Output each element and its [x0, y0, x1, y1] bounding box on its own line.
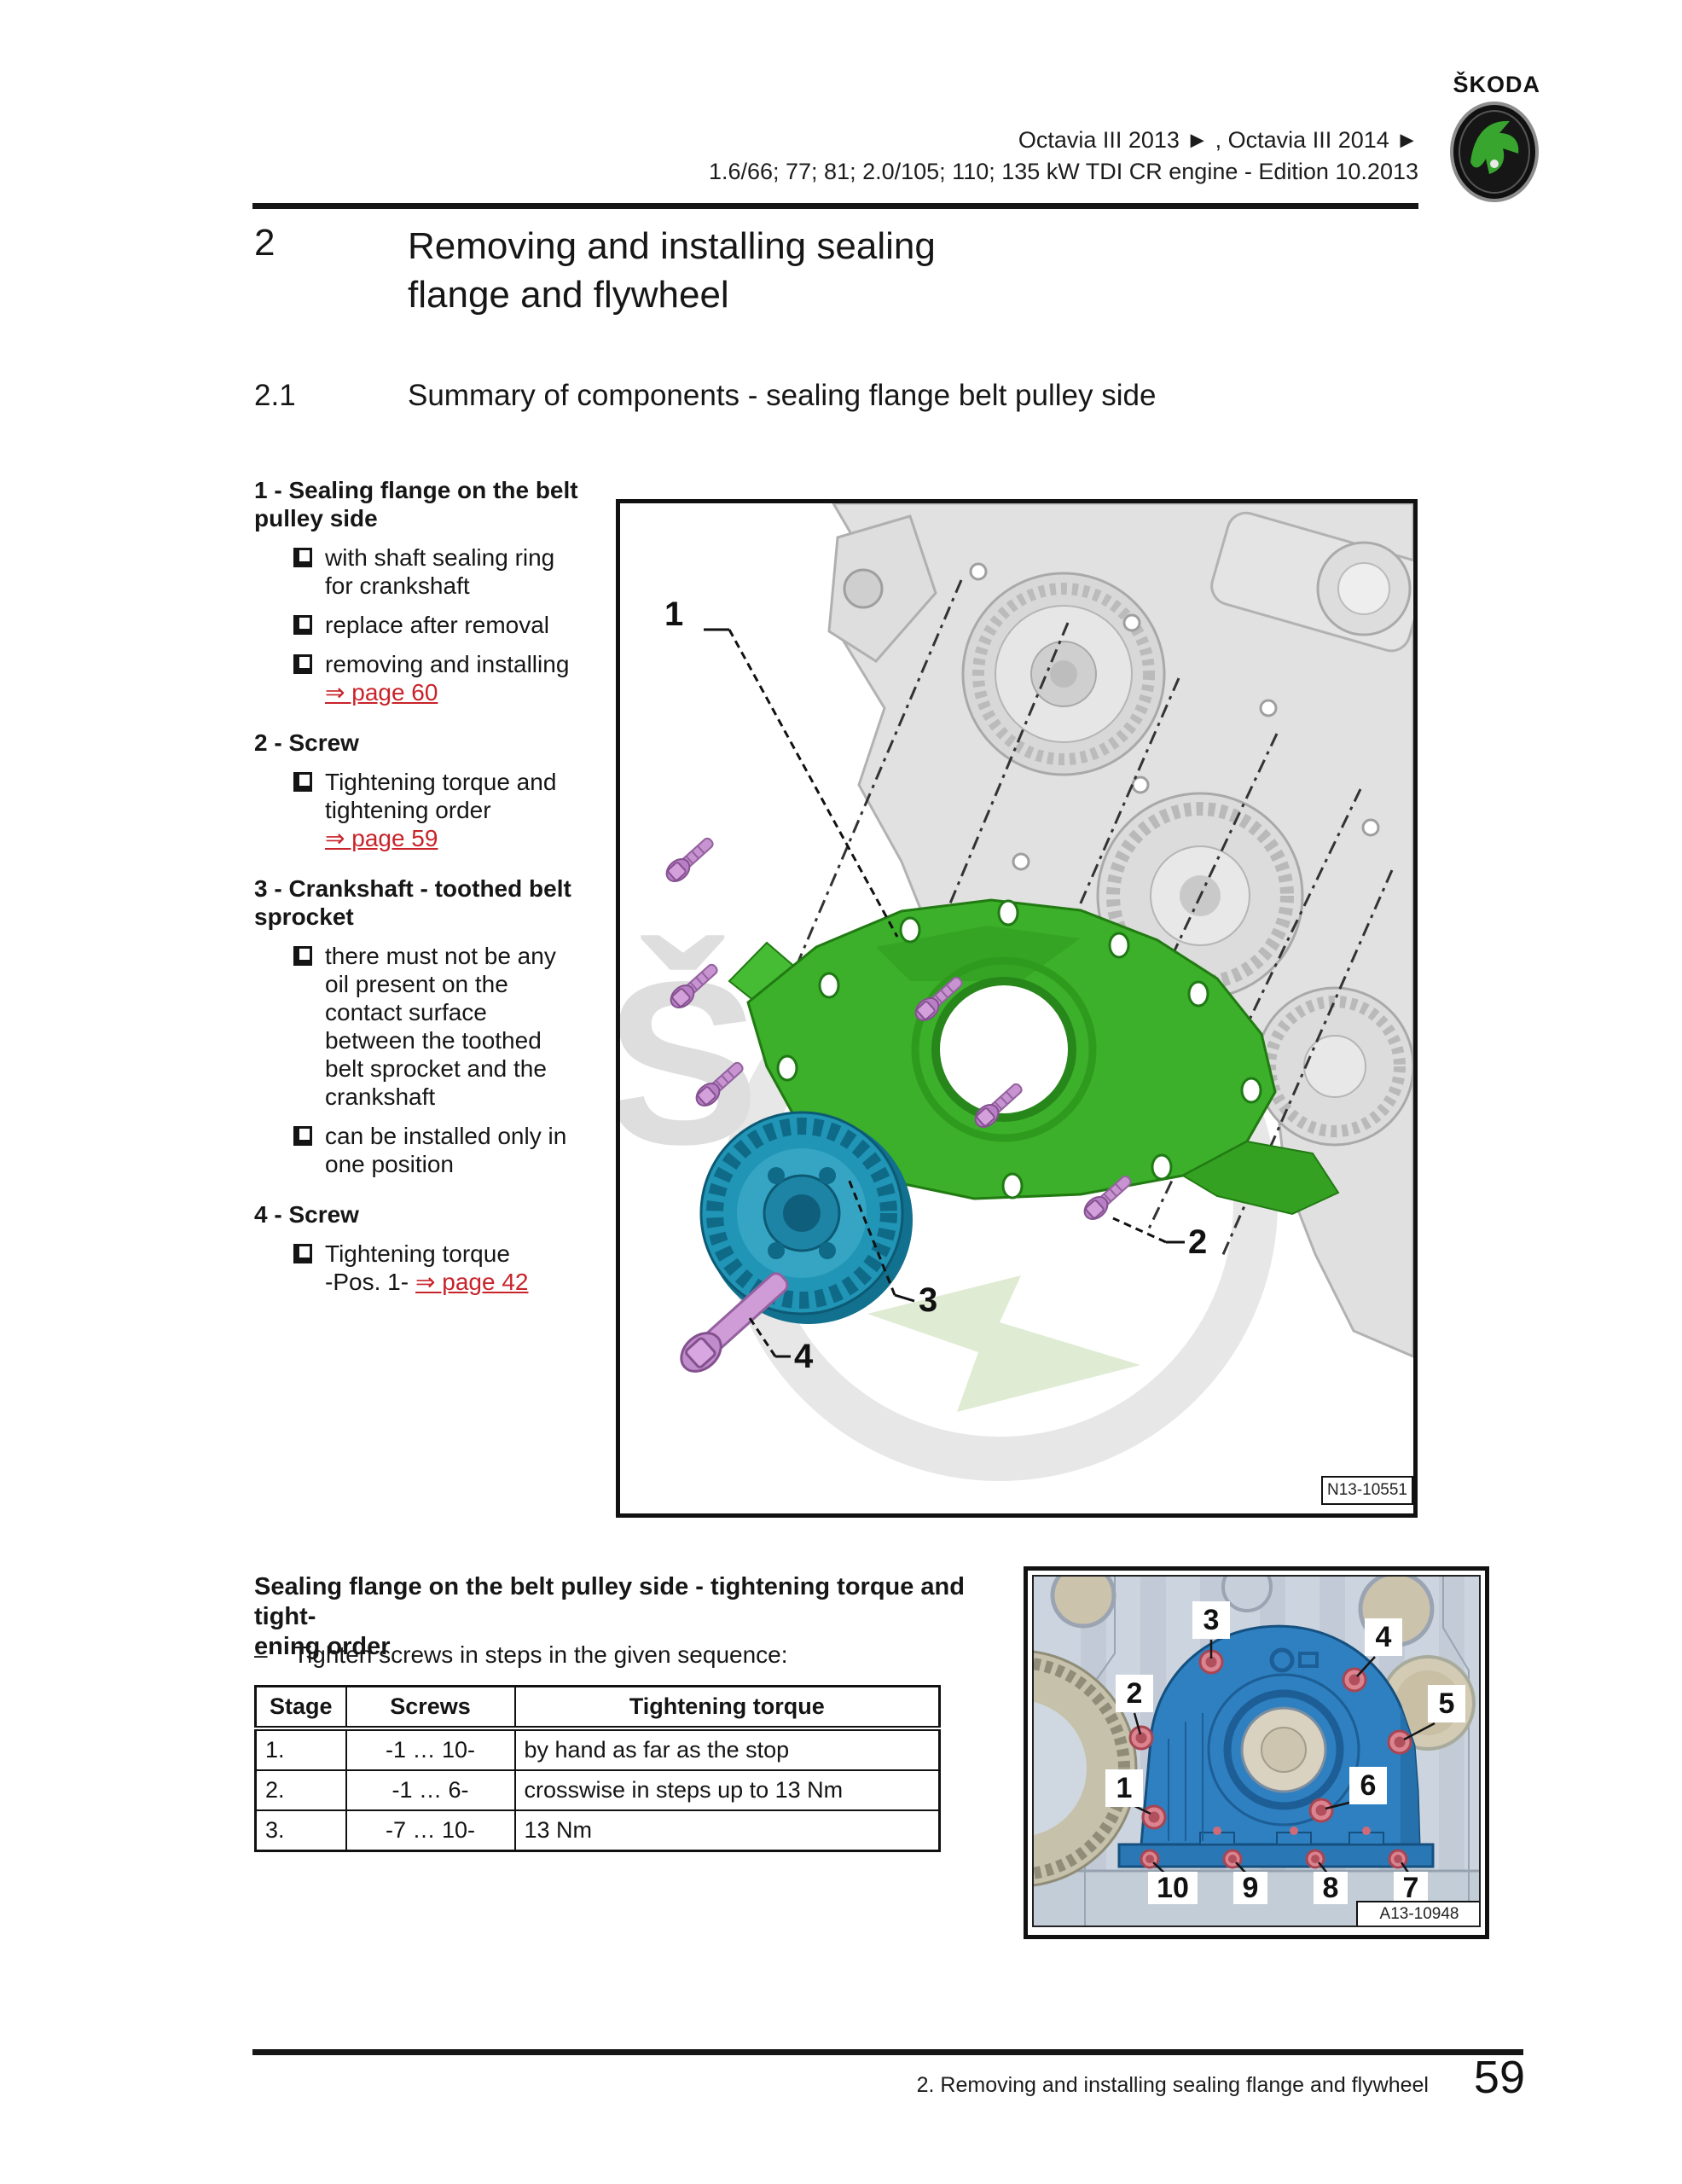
- tightening-torque-table: Stage Screws Tightening torque 1. -1 … 1…: [254, 1685, 941, 1852]
- torque-heading-line1: Sealing flange on the belt pulley side -…: [254, 1572, 1022, 1632]
- figure1-exploded-view: Š: [616, 499, 1418, 1518]
- checkbox-icon: [293, 772, 312, 792]
- legend-bullet: removing and installing ⇒ page 60: [254, 650, 597, 706]
- header-meta: Octavia III 2013 ► , Octavia III 2014 ► …: [709, 125, 1418, 188]
- skoda-logo-icon: [1450, 101, 1539, 203]
- figure2-callout-8: 8: [1314, 1872, 1348, 1904]
- legend-bullet: with shaft sealing ring for crankshaft: [254, 543, 597, 600]
- bullet-text: removing and installing ⇒ page 60: [325, 650, 583, 706]
- cell-screws: -1 … 6-: [346, 1770, 515, 1810]
- checkbox-icon: [293, 654, 312, 674]
- bullet-text: can be installed only in one position: [325, 1122, 583, 1178]
- table-row: 2. -1 … 6- crosswise in steps up to 13 N…: [256, 1770, 940, 1810]
- cell-stage: 1.: [256, 1728, 346, 1770]
- bullet-text-line: Tightening torque: [325, 1240, 510, 1267]
- page-link-42[interactable]: ⇒ page 42: [415, 1269, 528, 1295]
- checkbox-icon: [293, 615, 312, 635]
- figure1-illustration: Š: [620, 503, 1413, 1513]
- col-header-torque: Tightening torque: [515, 1687, 940, 1729]
- cell-screws: -1 … 10-: [346, 1728, 515, 1770]
- checkbox-icon: [293, 946, 312, 966]
- bullet-text-line: Tightening torque and tightening order: [325, 769, 556, 823]
- bullet-text: replace after removal: [325, 611, 583, 639]
- checkbox-icon: [293, 1244, 312, 1263]
- cell-screws: -7 … 10-: [346, 1810, 515, 1851]
- cell-torque: crosswise in steps up to 13 Nm: [515, 1770, 940, 1810]
- figure2-reference-label: A13-10948: [1356, 1901, 1481, 1927]
- cell-torque: 13 Nm: [515, 1810, 940, 1851]
- figure1-callout-3: 3: [919, 1281, 937, 1320]
- col-header-stage: Stage: [256, 1687, 346, 1729]
- header-rule: [252, 203, 1418, 209]
- checkbox-icon: [293, 1126, 312, 1146]
- subsection-title: Summary of components - sealing flange b…: [408, 379, 1156, 413]
- footer-page-number: 59: [1474, 2051, 1525, 2104]
- bullet-text: Tightening torque -Pos. 1-⇒ page 42: [325, 1240, 583, 1296]
- figure2-callout-1: 1: [1105, 1769, 1143, 1807]
- position-ref: -Pos. 1-: [325, 1269, 409, 1295]
- figure2-inner-frame: 1 2 3 4 5 6 7 8 9 10 A13-10948: [1032, 1575, 1481, 1927]
- legend-bullet: Tightening torque -Pos. 1-⇒ page 42: [254, 1240, 597, 1296]
- checkbox-icon: [293, 548, 312, 567]
- figure1-reference-label: N13-10551: [1321, 1476, 1413, 1505]
- section-title-line2: flange and flywheel: [408, 270, 936, 319]
- header-engine-line: 1.6/66; 77; 81; 2.0/105; 110; 135 kW TDI…: [709, 156, 1418, 188]
- table-row: 3. -7 … 10- 13 Nm: [256, 1810, 940, 1851]
- legend-item-3-label: 3 - Crankshaft - toothed belt sprocket: [254, 874, 597, 931]
- section-title: Removing and installing sealing flange a…: [408, 222, 936, 319]
- figure2-callout-4: 4: [1365, 1618, 1402, 1656]
- figure1-callout-4: 4: [794, 1338, 813, 1376]
- legend-bullet: Tightening torque and tightening order ⇒…: [254, 768, 597, 852]
- footer-chapter: 2. Removing and installing sealing flang…: [917, 2073, 1429, 2098]
- subsection-number: 2.1: [254, 379, 296, 413]
- cell-torque: by hand as far as the stop: [515, 1728, 940, 1770]
- table-row: 1. -1 … 10- by hand as far as the stop: [256, 1728, 940, 1770]
- dash-bullet: –: [254, 1641, 293, 1669]
- component-legend: 1 - Sealing flange on the belt pulley si…: [254, 454, 597, 1296]
- bullet-text: there must not be any oil present on the…: [325, 942, 583, 1111]
- section-title-line1: Removing and installing sealing: [408, 222, 936, 270]
- legend-item-1-label: 1 - Sealing flange on the belt pulley si…: [254, 476, 597, 532]
- legend-bullet: can be installed only in one position: [254, 1122, 597, 1178]
- skoda-wordmark: ŠKODA: [1453, 72, 1540, 98]
- legend-item-2-label: 2 - Screw: [254, 729, 597, 757]
- footer-rule: [252, 2049, 1523, 2055]
- col-header-screws: Screws: [346, 1687, 515, 1729]
- figure2-callout-10: 10: [1148, 1872, 1198, 1904]
- page-link-59[interactable]: ⇒ page 59: [325, 825, 438, 851]
- section-number: 2: [254, 222, 275, 264]
- torque-instruction: –Tighten screws in steps in the given se…: [254, 1641, 1022, 1669]
- figure2-callout-9: 9: [1233, 1872, 1267, 1904]
- figure2-callout-7: 7: [1394, 1872, 1428, 1904]
- figure2-callout-6: 6: [1349, 1767, 1387, 1804]
- page-link-60[interactable]: ⇒ page 60: [325, 679, 438, 706]
- table-header-row: Stage Screws Tightening torque: [256, 1687, 940, 1729]
- cell-stage: 3.: [256, 1810, 346, 1851]
- legend-item-4-label: 4 - Screw: [254, 1200, 597, 1228]
- legend-bullet: replace after removal: [254, 611, 597, 639]
- bullet-text-line: removing and installing: [325, 651, 569, 677]
- legend-bullet: there must not be any oil present on the…: [254, 942, 597, 1111]
- figure2-callout-3: 3: [1192, 1601, 1230, 1639]
- instruction-text: Tighten screws in steps in the given seq…: [293, 1641, 788, 1668]
- figure1-callout-2: 2: [1188, 1223, 1207, 1262]
- figure2-tightening-order: 1 2 3 4 5 6 7 8 9 10 A13-10948: [1024, 1566, 1489, 1939]
- figure1-callout-1: 1: [664, 595, 683, 634]
- bullet-text: Tightening torque and tightening order ⇒…: [325, 768, 583, 852]
- figure2-callout-2: 2: [1116, 1675, 1153, 1712]
- header-model-line: Octavia III 2013 ► , Octavia III 2014 ►: [709, 125, 1418, 156]
- figure2-callout-5: 5: [1428, 1685, 1465, 1722]
- cell-stage: 2.: [256, 1770, 346, 1810]
- bullet-text: with shaft sealing ring for crankshaft: [325, 543, 583, 600]
